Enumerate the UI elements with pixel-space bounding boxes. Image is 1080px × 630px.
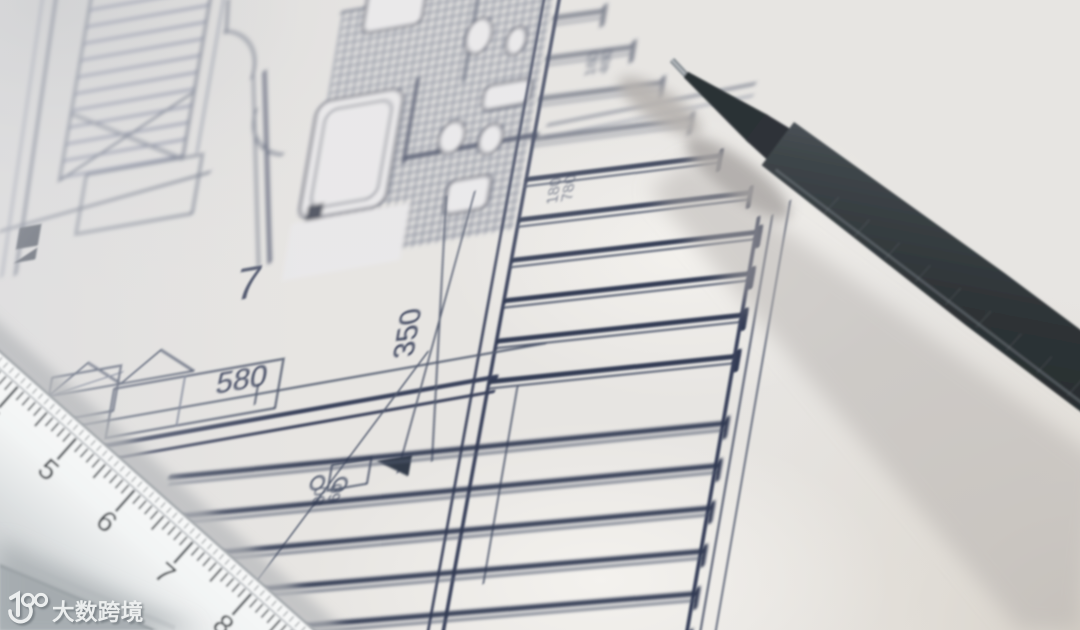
svg-text:大数跨境: 大数跨境: [52, 599, 144, 625]
